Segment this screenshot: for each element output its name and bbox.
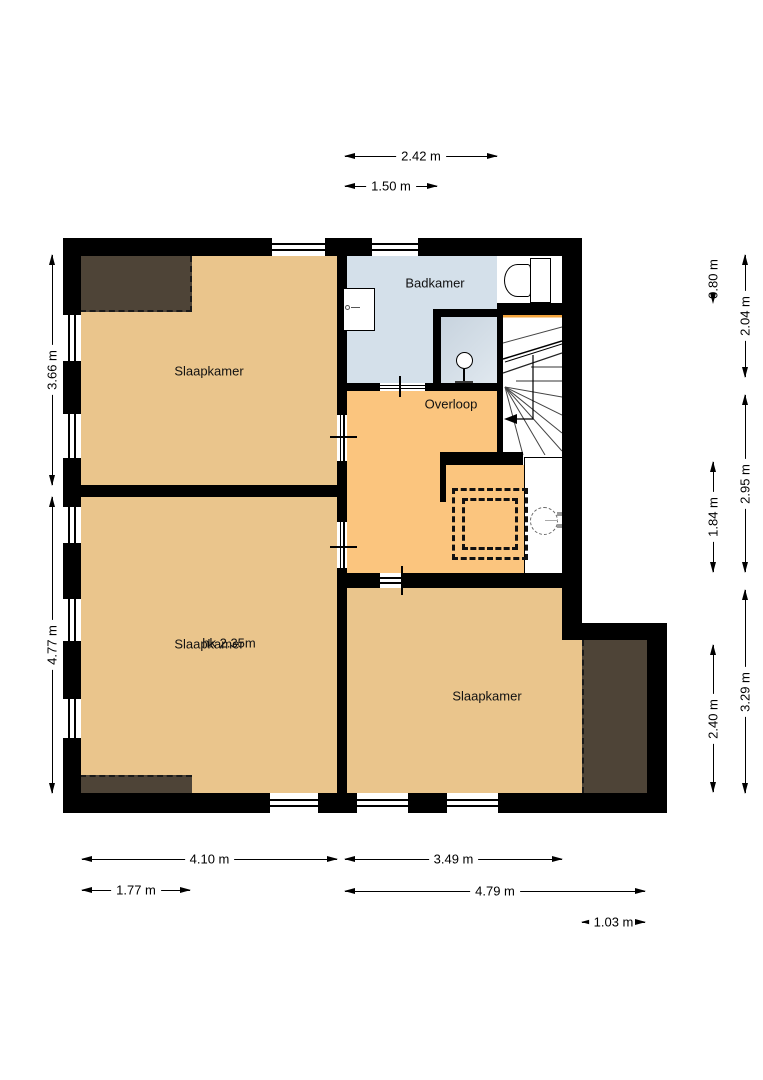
dim-label: 1.50 m xyxy=(366,180,416,195)
roof-zone-bottomright xyxy=(582,640,647,793)
wall-shower-left xyxy=(433,309,441,390)
roof-zone-bottomleft xyxy=(80,775,192,793)
dim-label: 1.77 m xyxy=(111,884,161,899)
dim-bottom-103: 1.03 m xyxy=(582,922,645,923)
dim-right-outer-295: 2.95 m xyxy=(745,395,746,572)
dim-top-242: 2.42 m xyxy=(345,156,497,157)
shower[interactable] xyxy=(441,317,497,383)
sink-faucet-line xyxy=(351,307,360,308)
dim-right-outer-204: 2.04 m xyxy=(745,255,746,377)
stairs-drawing xyxy=(503,315,562,455)
wall-toilet-nook-bottom xyxy=(497,303,562,315)
opening-tick xyxy=(399,376,401,397)
dim-label: 1.84 m xyxy=(707,492,722,542)
dim-label: 4.10 m xyxy=(185,853,235,868)
dim-label: 4.77 m xyxy=(46,620,61,670)
dim-label: 3.49 m xyxy=(429,853,479,868)
roof-zone-topleft xyxy=(80,256,192,312)
dim-left-366: 3.66 m xyxy=(52,255,53,485)
dim-label: 1.03 m xyxy=(589,916,639,931)
wall-right-lower xyxy=(647,640,667,793)
window[interactable] xyxy=(63,412,81,460)
window[interactable] xyxy=(270,238,327,256)
room-label-slaapkamer-topleft: Slaapkamer xyxy=(174,364,243,379)
window[interactable] xyxy=(63,313,81,363)
boiler-icon[interactable] xyxy=(530,507,558,535)
wall-bottomright-top xyxy=(337,573,582,588)
wall-l-horizontal xyxy=(440,452,523,465)
door-opening[interactable] xyxy=(337,520,347,570)
dim-right-inner-184: 1.84 m xyxy=(713,462,714,572)
dim-label: 3.29 m xyxy=(739,667,754,717)
dashed-roof-opening-inner xyxy=(462,498,518,550)
door-opening[interactable] xyxy=(337,413,347,463)
dim-label: 4.79 m xyxy=(470,885,520,900)
dim-left-477: 4.77 m xyxy=(52,497,53,793)
dim-right-outer-329: 3.29 m xyxy=(745,590,746,793)
floorplan-canvas: Slaapkamer Badkamer Overloop Slaapkamer … xyxy=(0,0,763,1080)
dim-bottom-410: 4.10 m xyxy=(82,859,337,860)
dim-label: 0.80 m xyxy=(707,254,722,304)
dim-label: 2.95 m xyxy=(739,459,754,509)
dim-bottom-349: 3.49 m xyxy=(345,859,562,860)
dim-label: 2.04 m xyxy=(739,291,754,341)
window[interactable] xyxy=(355,793,410,813)
dim-label: 2.40 m xyxy=(707,694,722,744)
window[interactable] xyxy=(63,697,81,740)
opening-tick xyxy=(330,546,357,548)
dim-right-inner-080: 0.80 m xyxy=(713,255,714,303)
toilet-bowl[interactable] xyxy=(504,264,531,297)
dim-label: 2.42 m xyxy=(396,150,446,165)
sink-faucet-icon xyxy=(345,305,350,310)
window[interactable] xyxy=(445,793,500,813)
toilet-cistern[interactable] xyxy=(530,258,551,303)
opening-tick xyxy=(401,566,403,595)
wall-right-upper xyxy=(562,238,582,623)
window[interactable] xyxy=(370,238,420,256)
wall-stairs-left xyxy=(497,309,503,455)
room-label-overloop: Overloop xyxy=(425,397,478,412)
door-opening[interactable] xyxy=(378,383,427,391)
dim-label: 3.66 m xyxy=(46,345,61,395)
window[interactable] xyxy=(63,597,81,643)
room-height-note: hk 2.35m xyxy=(202,636,255,651)
window[interactable] xyxy=(268,793,320,813)
dim-bottom-479: 4.79 m xyxy=(345,891,645,892)
boiler-connector xyxy=(545,520,558,521)
shower-head-icon xyxy=(456,352,473,369)
dim-bottom-177: 1.77 m xyxy=(82,890,190,891)
dim-right-inner-240: 2.40 m xyxy=(713,645,714,792)
wall-step xyxy=(562,623,667,640)
window[interactable] xyxy=(63,505,81,545)
wall-left-rooms-divider xyxy=(63,485,347,497)
opening-tick xyxy=(330,436,357,438)
wall-l-vertical xyxy=(440,452,446,502)
room-label-slaapkamer-bottomright: Slaapkamer xyxy=(452,689,521,704)
wall-shower-top xyxy=(433,309,497,317)
room-label-badkamer: Badkamer xyxy=(405,276,464,291)
dim-top-150: 1.50 m xyxy=(345,186,437,187)
stairs[interactable] xyxy=(503,315,562,455)
